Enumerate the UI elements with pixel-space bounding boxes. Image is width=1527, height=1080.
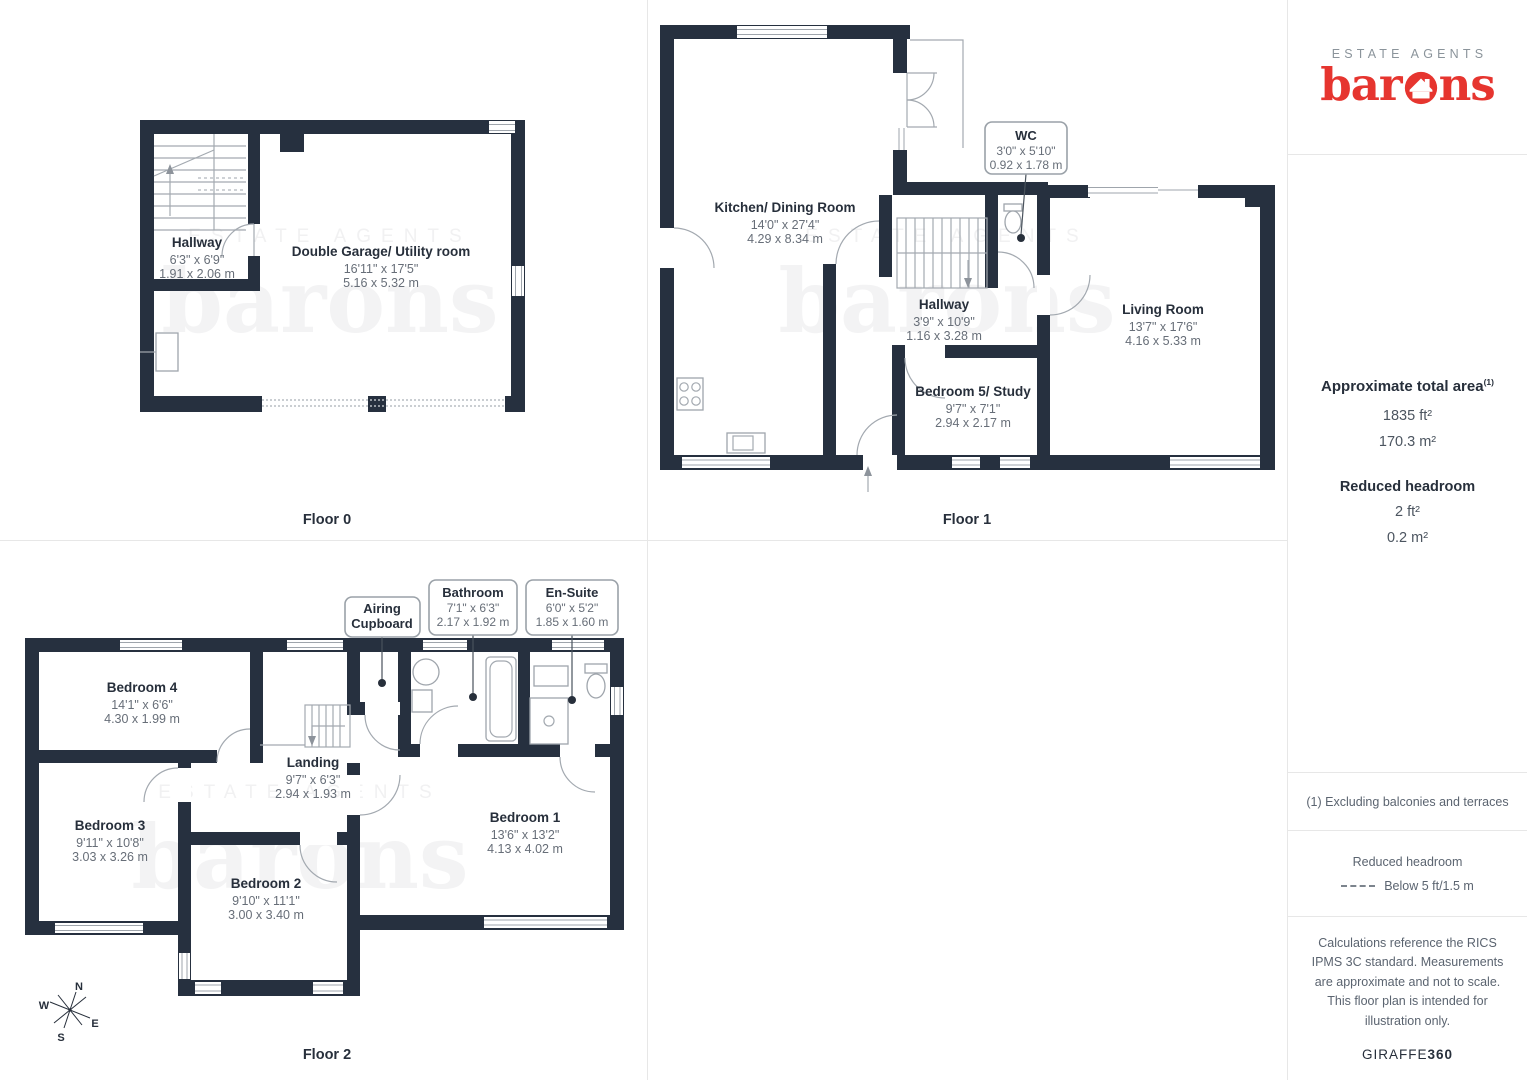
svg-text:9'11" x 10'8": 9'11" x 10'8" (76, 836, 144, 850)
svg-text:Bedroom 4: Bedroom 4 (107, 680, 178, 695)
disclaimer-text: Calculations reference the RICS IPMS 3C … (1306, 934, 1510, 1031)
logo-brand-suffix: ns (1439, 62, 1495, 107)
room-label-bedroom4: Bedroom 4 14'1" x 6'6" 4.30 x 1.99 m (104, 680, 180, 726)
floor1-plan: ESTATE AGENTS barons (647, 0, 1287, 540)
bathroom-fixtures (412, 657, 516, 741)
compass-n: N (75, 981, 83, 993)
total-area-ft: 1835 ft² (1383, 403, 1432, 429)
logo-brand-prefix: bar (1320, 62, 1401, 107)
svg-text:Kitchen/ Dining Room: Kitchen/ Dining Room (715, 200, 856, 215)
svg-text:13'6" x 13'2": 13'6" x 13'2" (491, 828, 560, 842)
svg-text:1.91 x 2.06 m: 1.91 x 2.06 m (159, 267, 235, 281)
legend-row: Below 5 ft/1.5 m (1341, 879, 1474, 893)
svg-text:Bedroom 2: Bedroom 2 (231, 876, 302, 891)
svg-text:13'7" x 17'6": 13'7" x 17'6" (1129, 320, 1198, 334)
svg-text:1.16 x 3.28 m: 1.16 x 3.28 m (906, 329, 982, 343)
giraffe360-credit: GIRAFFE360 (1362, 1047, 1453, 1062)
wc-fixtures (1004, 204, 1022, 233)
floor2-stairs (260, 705, 350, 747)
reduced-headroom-ft: 2 ft² (1395, 499, 1420, 525)
svg-text:0.92 x 1.78 m: 0.92 x 1.78 m (990, 158, 1063, 172)
credit-normal: GIRAFFE (1362, 1047, 1428, 1062)
svg-text:Hallway: Hallway (172, 235, 223, 250)
svg-text:2.94 x 2.17 m: 2.94 x 2.17 m (935, 416, 1011, 430)
reduced-headroom-title: Reduced headroom (1340, 479, 1475, 495)
svg-text:2.17 x 1.92 m: 2.17 x 1.92 m (437, 615, 510, 629)
floor2-label: Floor 2 (303, 1047, 351, 1063)
footnote-section: (1) Excluding balconies and terraces (1288, 772, 1527, 830)
compass: N W E S (39, 981, 99, 1044)
svg-text:3.00 x 3.40 m: 3.00 x 3.40 m (228, 908, 304, 922)
total-area-m: 170.3 m² (1379, 429, 1436, 455)
svg-text:7'1" x 6'3": 7'1" x 6'3" (447, 601, 499, 615)
footnote-text: (1) Excluding balconies and terraces (1306, 795, 1508, 809)
svg-text:14'0" x 27'4": 14'0" x 27'4" (751, 218, 820, 232)
svg-text:Bedroom 1: Bedroom 1 (490, 810, 561, 825)
room-label-living: Living Room 13'7" x 17'6" 4.16 x 5.33 m (1122, 302, 1204, 348)
svg-text:Hallway: Hallway (919, 297, 970, 312)
svg-text:Living Room: Living Room (1122, 302, 1204, 317)
total-area-title-text: Approximate total area (1321, 378, 1484, 395)
logo-section: ESTATE AGENTS bar ns (1288, 0, 1527, 155)
floor1-label: Floor 1 (943, 512, 991, 528)
svg-text:Bathroom: Bathroom (442, 585, 503, 600)
legend-title: Reduced headroom (1353, 855, 1463, 869)
room-label-landing: Landing 9'7" x 6'3" 2.94 x 1.93 m (275, 755, 351, 801)
svg-text:9'10" x 11'1": 9'10" x 11'1" (232, 894, 300, 908)
compass-s: S (57, 1032, 64, 1044)
svg-text:2.94 x 1.93 m: 2.94 x 1.93 m (275, 787, 351, 801)
floor2-plan: ESTATE AGENTS barons (0, 540, 647, 1080)
svg-text:Cupboard: Cupboard (351, 616, 412, 631)
svg-text:16'11" x 17'5": 16'11" x 17'5" (344, 262, 419, 276)
reduced-headroom-m: 0.2 m² (1387, 525, 1428, 551)
house-icon (1402, 69, 1440, 107)
svg-text:9'7" x 6'3": 9'7" x 6'3" (286, 773, 341, 787)
total-area-footnote-marker: (1) (1484, 377, 1494, 387)
svg-text:3.03 x 3.26 m: 3.03 x 3.26 m (72, 850, 148, 864)
svg-text:5.16 x 5.32 m: 5.16 x 5.32 m (343, 276, 419, 290)
svg-text:3'9" x 10'9": 3'9" x 10'9" (913, 315, 975, 329)
svg-text:4.16 x 5.33 m: 4.16 x 5.33 m (1125, 334, 1201, 348)
room-label-bedroom2: Bedroom 2 9'10" x 11'1" 3.00 x 3.40 m (228, 876, 304, 922)
svg-text:Bedroom 5/ Study: Bedroom 5/ Study (915, 384, 1031, 399)
empty-panel (647, 540, 1287, 1080)
svg-text:Bedroom 3: Bedroom 3 (75, 818, 146, 833)
legend-item: Below 5 ft/1.5 m (1384, 879, 1474, 893)
legend-section: Reduced headroom Below 5 ft/1.5 m (1288, 830, 1527, 916)
room-label-bedroom3: Bedroom 3 9'11" x 10'8" 3.03 x 3.26 m (72, 818, 148, 864)
svg-text:9'7" x 7'1": 9'7" x 7'1" (946, 402, 1001, 416)
svg-text:4.30 x 1.99 m: 4.30 x 1.99 m (104, 712, 180, 726)
floor0-plan: ESTATE AGENTS barons (0, 0, 647, 540)
disclaimer-section: Calculations reference the RICS IPMS 3C … (1288, 916, 1527, 1079)
compass-e: E (91, 1018, 98, 1030)
svg-text:WC: WC (1015, 128, 1037, 143)
svg-text:Landing: Landing (287, 755, 340, 770)
svg-text:En-Suite: En-Suite (546, 585, 599, 600)
room-label-bedroom5: Bedroom 5/ Study 9'7" x 7'1" 2.94 x 2.17… (915, 384, 1031, 430)
sidebar: ESTATE AGENTS bar ns Approximate total a… (1287, 0, 1527, 1080)
svg-text:14'1" x 6'6": 14'1" x 6'6" (111, 698, 173, 712)
double-doors (907, 40, 963, 148)
total-area-title: Approximate total area(1) (1321, 377, 1494, 395)
ensuite-fixtures (530, 664, 607, 744)
floorplan-page: ESTATE AGENTS barons (0, 0, 1527, 1080)
dashed-line-icon (1341, 885, 1375, 887)
kitchen-fixtures (677, 378, 765, 453)
credit-bold: 360 (1427, 1047, 1453, 1062)
room-label-bedroom1: Bedroom 1 13'6" x 13'2" 4.13 x 4.02 m (487, 810, 563, 856)
floor0-stairs (154, 134, 246, 230)
floor0-label: Floor 0 (303, 512, 351, 528)
logo-brand: bar ns (1320, 62, 1494, 107)
svg-text:Double Garage/ Utility room: Double Garage/ Utility room (292, 244, 471, 259)
compass-w: W (39, 1000, 50, 1012)
svg-text:3'0" x 5'10": 3'0" x 5'10" (996, 144, 1055, 158)
svg-text:6'0" x 5'2": 6'0" x 5'2" (546, 601, 598, 615)
svg-text:4.13 x 4.02 m: 4.13 x 4.02 m (487, 842, 563, 856)
svg-text:6'3" x 6'9": 6'3" x 6'9" (170, 253, 225, 267)
svg-text:1.85 x 1.60 m: 1.85 x 1.60 m (536, 615, 609, 629)
svg-text:4.29 x 8.34 m: 4.29 x 8.34 m (747, 232, 823, 246)
svg-text:Airing: Airing (363, 601, 401, 616)
area-summary-section: Approximate total area(1) 1835 ft² 170.3… (1288, 156, 1527, 772)
